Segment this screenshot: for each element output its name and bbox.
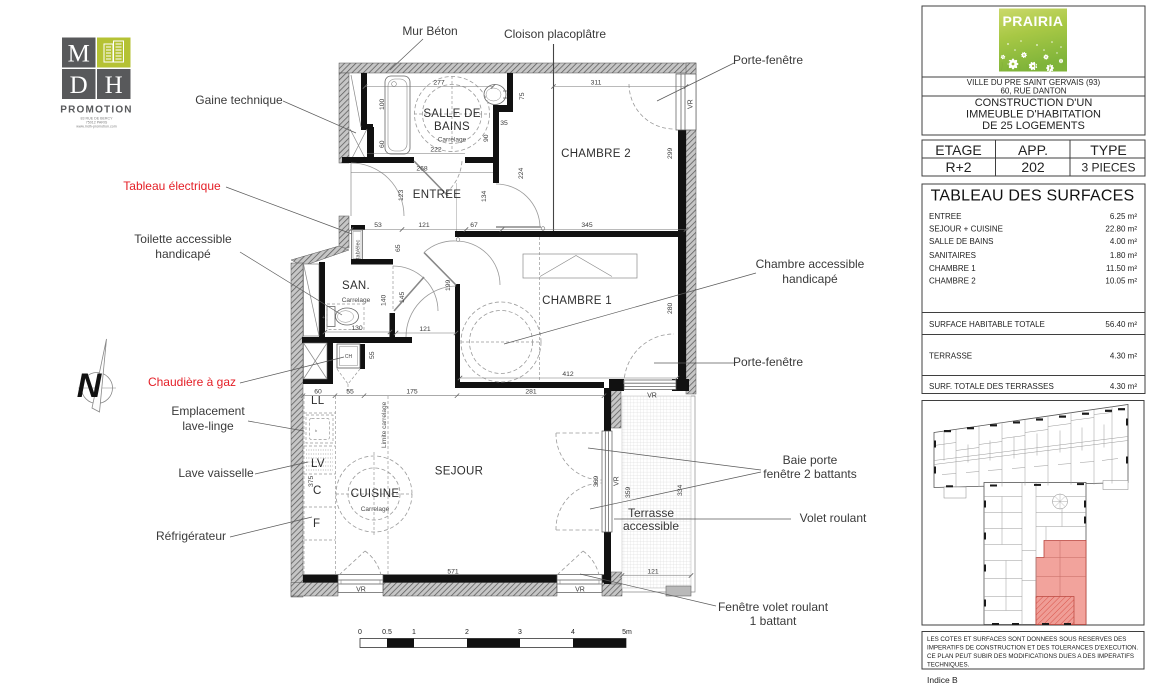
svg-text:0: 0 (358, 629, 362, 636)
svg-text:lave-linge: lave-linge (182, 419, 234, 433)
svg-text:SURFACE HABITABLE TOTALE: SURFACE HABITABLE TOTALE (929, 320, 1045, 329)
svg-text:Fenêtre volet roulant: Fenêtre volet roulant (718, 600, 829, 614)
svg-text:F: F (313, 518, 320, 530)
svg-text:TYPE: TYPE (1090, 142, 1127, 158)
svg-text:M: M (68, 41, 90, 68)
svg-text:1.80 m²: 1.80 m² (1110, 251, 1137, 260)
svg-text:134: 134 (481, 190, 488, 202)
svg-text:DE 25 LOGEMENTS: DE 25 LOGEMENTS (982, 120, 1085, 132)
svg-text:CHAMBRE 2: CHAMBRE 2 (929, 277, 976, 286)
svg-text:1: 1 (412, 629, 416, 636)
svg-text:60: 60 (379, 140, 386, 148)
svg-text:0.5: 0.5 (382, 629, 392, 636)
svg-text:35: 35 (500, 120, 508, 127)
svg-text:CONSTRUCTION D'UN: CONSTRUCTION D'UN (975, 97, 1093, 109)
svg-text:SAN.: SAN. (342, 280, 370, 292)
svg-text:D: D (70, 72, 88, 99)
svg-text:571: 571 (447, 569, 459, 576)
svg-text:121: 121 (419, 326, 431, 333)
svg-text:fenêtre 2 battants: fenêtre 2 battants (763, 467, 856, 481)
svg-text:56.40 m²: 56.40 m² (1105, 320, 1137, 329)
svg-text:handicapé: handicapé (155, 247, 211, 261)
svg-text:75: 75 (519, 92, 526, 100)
svg-text:369: 369 (593, 475, 600, 487)
svg-text:4: 4 (571, 629, 575, 636)
svg-text:SALLE DE: SALLE DE (423, 108, 480, 120)
svg-text:1 battant: 1 battant (750, 614, 797, 628)
svg-text:Emplacement: Emplacement (171, 404, 245, 418)
svg-text:VR: VR (647, 393, 657, 400)
svg-text:224: 224 (518, 167, 525, 179)
svg-text:ENTREE: ENTREE (929, 212, 961, 221)
svg-text:55: 55 (346, 389, 354, 396)
svg-text:Limite carrelage: Limite carrelage (381, 401, 388, 448)
svg-text:145: 145 (399, 291, 406, 303)
svg-text:CH: CH (345, 354, 353, 360)
svg-text:ENTREE: ENTREE (413, 189, 461, 201)
svg-text:Terrasse: Terrasse (628, 506, 674, 520)
svg-text:Baie porte: Baie porte (783, 453, 838, 467)
svg-text:3 PIECES: 3 PIECES (1081, 161, 1135, 175)
svg-text:140: 140 (381, 294, 388, 306)
svg-text:VR: VR (356, 587, 366, 594)
svg-text:202: 202 (1021, 159, 1045, 175)
svg-text:11.50 m²: 11.50 m² (1106, 264, 1137, 273)
svg-text:Indice B: Indice B (927, 675, 958, 685)
svg-text:BAINS: BAINS (434, 121, 470, 133)
svg-text:CHAMBRE 2: CHAMBRE 2 (561, 148, 631, 160)
svg-text:Carrelage: Carrelage (438, 137, 467, 144)
svg-text:Carrelage: Carrelage (361, 506, 390, 513)
svg-text:299: 299 (667, 147, 674, 159)
svg-text:10.05 m²: 10.05 m² (1105, 277, 1137, 286)
svg-text:60, RUE DANTON: 60, RUE DANTON (1000, 87, 1066, 96)
svg-text:Chambre accessible: Chambre accessible (756, 257, 865, 271)
svg-text:Cloison placoplâtre: Cloison placoplâtre (504, 27, 606, 41)
svg-text:LL: LL (311, 395, 325, 407)
svg-text:345: 345 (581, 222, 593, 229)
svg-text:65: 65 (395, 244, 402, 252)
svg-text:+: + (322, 315, 325, 321)
svg-text:375: 375 (308, 475, 315, 487)
svg-text:359: 359 (625, 486, 632, 498)
svg-text:100: 100 (379, 98, 386, 110)
svg-text:53: 53 (374, 222, 382, 229)
svg-text:N: N (77, 367, 103, 405)
svg-text:Gaine technique: Gaine technique (195, 93, 283, 107)
svg-text:VR: VR (688, 99, 695, 109)
svg-text:APP.: APP. (1018, 142, 1048, 158)
svg-text:121: 121 (418, 222, 430, 229)
svg-text:55: 55 (369, 351, 376, 359)
svg-text:tab/élec: tab/élec (356, 239, 362, 259)
svg-text:60: 60 (314, 389, 322, 396)
svg-text:175: 175 (406, 389, 418, 396)
svg-text:Volet roulant: Volet roulant (800, 511, 867, 525)
svg-text:2: 2 (465, 629, 469, 636)
svg-text:IMMEUBLE D'HABITATION: IMMEUBLE D'HABITATION (966, 109, 1101, 121)
svg-text:PROMOTION: PROMOTION (60, 105, 132, 116)
svg-text:VR: VR (575, 587, 585, 594)
svg-text:130: 130 (351, 325, 363, 332)
svg-text:311: 311 (591, 80, 602, 87)
svg-text:Tableau électrique: Tableau électrique (123, 179, 221, 193)
svg-text:SALLE DE BAINS: SALLE DE BAINS (929, 237, 993, 246)
svg-text:412: 412 (562, 371, 574, 378)
svg-text:TECHNIQUES.: TECHNIQUES. (927, 662, 970, 669)
svg-text:LES COTES ET SURFACES SONT DON: LES COTES ET SURFACES SONT DONNEES SOUS … (927, 636, 1126, 643)
svg-text:199: 199 (445, 279, 452, 291)
svg-text:handicapé: handicapé (782, 272, 838, 286)
svg-text:VR: VR (614, 476, 621, 486)
svg-text:4.30 m²: 4.30 m² (1110, 382, 1137, 391)
svg-text:CUISINE: CUISINE (351, 488, 400, 500)
svg-text:TERRASSE: TERRASSE (929, 352, 972, 361)
svg-text:22.80 m²: 22.80 m² (1105, 225, 1137, 234)
svg-text:6.25 m²: 6.25 m² (1110, 212, 1137, 221)
svg-text:CHAMBRE 1: CHAMBRE 1 (542, 295, 612, 307)
svg-text:H: H (105, 72, 123, 99)
svg-text:SANITAIRES: SANITAIRES (929, 251, 976, 260)
svg-text:3: 3 (518, 629, 522, 636)
svg-text:Porte-fenêtre: Porte-fenêtre (733, 53, 803, 67)
svg-text:Lave vaisselle: Lave vaisselle (178, 466, 254, 480)
svg-text:268: 268 (416, 166, 428, 173)
svg-text:SEJOUR + CUISINE: SEJOUR + CUISINE (929, 225, 1003, 234)
svg-text:5m: 5m (622, 629, 632, 636)
svg-text:277: 277 (433, 80, 445, 87)
svg-text:LV: LV (311, 458, 325, 470)
svg-text:SURF. TOTALE DES TERRASSES: SURF. TOTALE DES TERRASSES (929, 382, 1054, 391)
svg-text:Porte-fenêtre: Porte-fenêtre (733, 355, 803, 369)
svg-text:CE PLAN PEUT SUBIR DES MODIFIC: CE PLAN PEUT SUBIR DES MODIFICATIONS DUE… (927, 653, 1134, 660)
svg-text:SEJOUR: SEJOUR (435, 466, 483, 478)
svg-text:Mur Béton: Mur Béton (402, 24, 457, 38)
svg-text:4.30 m²: 4.30 m² (1110, 352, 1137, 361)
svg-text:67: 67 (470, 222, 478, 229)
svg-text:90: 90 (483, 134, 490, 142)
svg-text:280: 280 (667, 302, 674, 314)
svg-text:121: 121 (647, 569, 659, 576)
svg-text:TABLEAU DES SURFACES: TABLEAU DES SURFACES (931, 188, 1135, 205)
svg-text:281: 281 (525, 389, 537, 396)
svg-text:PRAIRIA: PRAIRIA (1002, 13, 1063, 29)
svg-text:Réfrigérateur: Réfrigérateur (156, 529, 226, 543)
svg-text:accessible: accessible (623, 519, 679, 533)
svg-text:www.mdh-promotion.com: www.mdh-promotion.com (76, 125, 117, 129)
svg-text:123: 123 (398, 189, 405, 201)
svg-text:R+2: R+2 (945, 159, 971, 175)
svg-text:Chaudière à gaz: Chaudière à gaz (148, 375, 236, 389)
svg-text:4.00 m²: 4.00 m² (1110, 237, 1137, 246)
svg-text:ETAGE: ETAGE (935, 142, 981, 158)
svg-text:CHAMBRE 1: CHAMBRE 1 (929, 264, 976, 273)
svg-text:Toilette accessible: Toilette accessible (134, 232, 232, 246)
svg-text:222: 222 (430, 147, 442, 154)
svg-text:Carrelage: Carrelage (342, 297, 371, 304)
svg-text:IMPERATIFS DE CONSTRUCTION ET: IMPERATIFS DE CONSTRUCTION ET DES TOLERA… (927, 645, 1138, 652)
